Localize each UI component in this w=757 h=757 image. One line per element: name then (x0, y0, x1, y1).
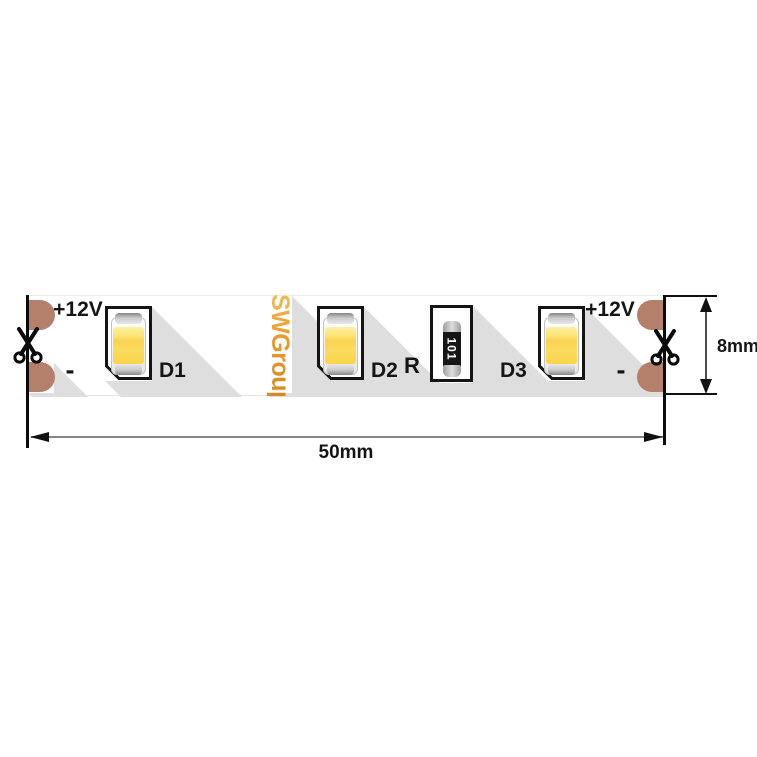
solder-pad-right-positive (637, 300, 663, 330)
led-phosphor-chip (546, 327, 577, 364)
led-phosphor-chip (113, 327, 144, 364)
arrow-right-icon (644, 432, 663, 442)
arrow-down-icon (700, 379, 712, 394)
dimension-label-height: 8mm (717, 337, 757, 357)
terminal-label-negative-left: - (59, 356, 81, 386)
cut-line-left (26, 295, 29, 448)
resistor-label: R (404, 354, 420, 378)
resistor-code: 101 (445, 337, 459, 360)
arrow-left-icon (30, 432, 49, 442)
dimension-line-height (705, 310, 707, 382)
led-electrode-bottom (115, 364, 142, 375)
led-label-d3: D3 (500, 359, 527, 382)
resistor-body: 101 (443, 332, 461, 366)
scissors-icon (8, 325, 48, 365)
terminal-label-positive-left: +12V (52, 298, 104, 321)
led-electrode-top (548, 313, 575, 324)
led-strip-diagram: +12V - D1 SWGroup D2 R 101 D3 (0, 0, 757, 757)
scissors-icon (645, 327, 685, 367)
resistor-cap-bottom (443, 365, 461, 377)
led-electrode-top (327, 313, 354, 324)
led-electrode-bottom (327, 364, 354, 375)
terminal-label-positive-right: +12V (584, 298, 636, 321)
led-phosphor-chip (325, 327, 356, 364)
dimension-line-length (31, 436, 663, 438)
resistor-r: 101 (430, 305, 473, 382)
arrow-up-icon (700, 297, 712, 312)
dimension-label-length: 50mm (294, 443, 398, 464)
led-d2 (317, 306, 364, 380)
led-electrode-bottom (548, 364, 575, 375)
led-electrode-top (115, 313, 142, 324)
terminal-label-negative-right: - (610, 356, 632, 386)
cut-line-right (663, 295, 666, 445)
brand-text: SWGroup (264, 294, 294, 396)
led-label-d2: D2 (371, 359, 398, 382)
led-d3 (538, 306, 585, 380)
led-d1 (105, 306, 152, 380)
led-label-d1: D1 (159, 359, 186, 382)
